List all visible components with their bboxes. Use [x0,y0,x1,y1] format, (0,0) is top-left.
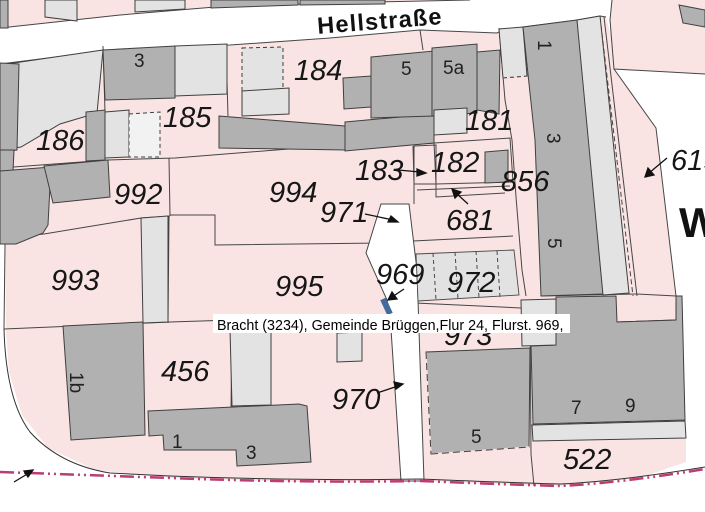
svg-text:994: 994 [269,177,317,209]
svg-text:Bracht (3234), Gemeinde Brügge: Bracht (3234), Gemeinde Brüggen,Flur 24,… [217,318,563,334]
svg-text:181: 181 [465,105,513,137]
svg-text:856: 856 [501,166,550,198]
svg-text:995: 995 [275,271,324,303]
svg-text:W: W [679,199,705,246]
svg-text:993: 993 [51,265,99,297]
svg-text:5: 5 [471,427,482,448]
svg-text:183: 183 [355,155,403,187]
svg-text:681: 681 [446,205,494,237]
svg-text:3: 3 [542,133,563,144]
svg-text:971: 971 [320,197,368,229]
svg-text:186: 186 [36,125,85,157]
svg-text:969: 969 [376,259,424,291]
svg-text:1: 1 [533,40,554,51]
svg-text:522: 522 [563,444,611,476]
svg-text:5: 5 [543,238,564,249]
svg-text:3: 3 [246,443,257,464]
svg-text:456: 456 [161,356,210,388]
svg-text:972: 972 [447,267,495,299]
svg-text:182: 182 [431,147,479,179]
svg-text:185: 185 [163,102,212,134]
svg-text:184: 184 [294,55,342,87]
svg-text:1: 1 [172,432,183,453]
svg-text:970: 970 [332,384,380,416]
svg-text:992: 992 [114,179,162,211]
svg-text:5a: 5a [443,58,465,79]
svg-text:3: 3 [134,51,145,72]
svg-text:9: 9 [625,396,636,417]
svg-text:619: 619 [671,145,705,177]
svg-text:1b: 1b [65,372,86,393]
svg-text:7: 7 [571,398,582,419]
svg-text:5: 5 [401,59,412,80]
